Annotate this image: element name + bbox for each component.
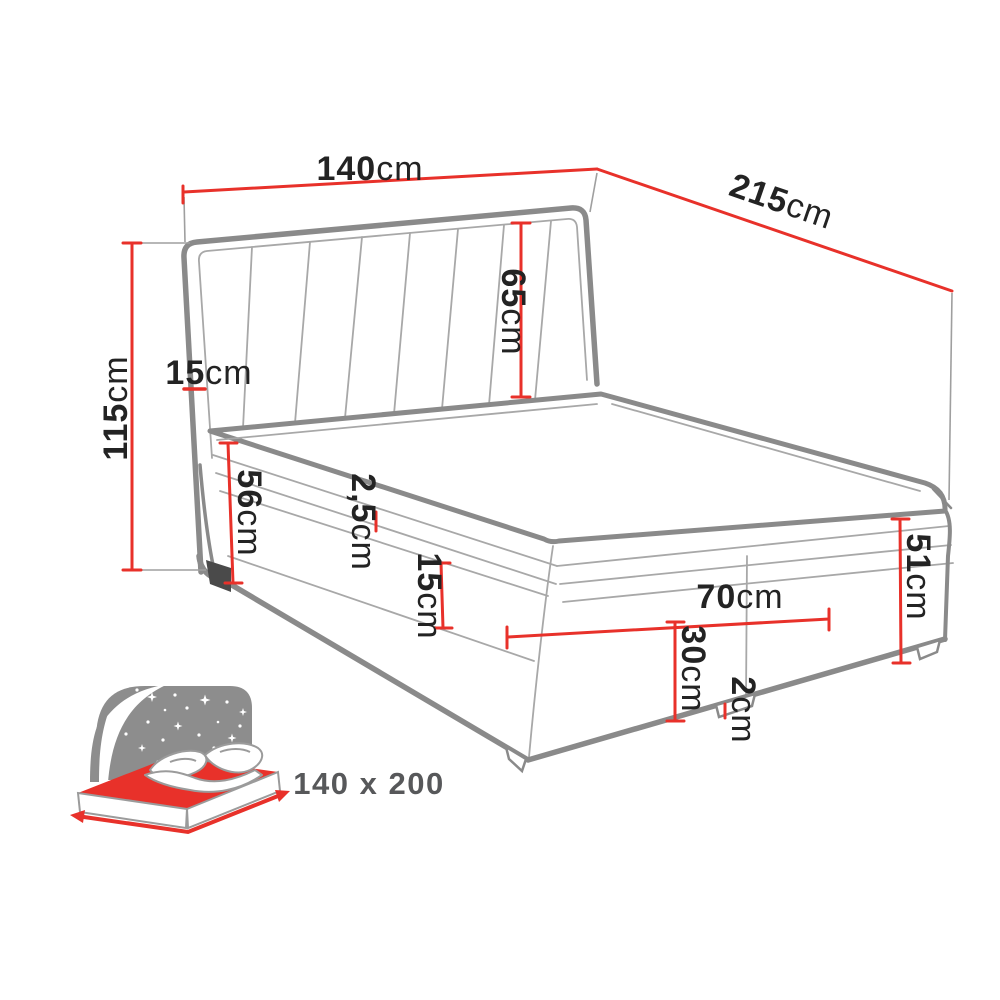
leg-height-label: 2cm	[724, 676, 762, 743]
size-label: 140 x 200	[293, 766, 444, 801]
bed-legs	[206, 560, 940, 771]
topper-thickness-label: 2,5cm	[344, 473, 382, 571]
leg-right	[917, 640, 940, 659]
bed-drawing	[184, 208, 953, 771]
diagram-canvas: 140cm 215cm 115cm 15cm 65cm 56cm 2,5cm 1…	[0, 0, 1000, 1000]
mattress-thickness-label: 15cm	[410, 552, 448, 639]
side-height-label: 51cm	[899, 533, 937, 620]
total-height-label: 115cm	[97, 355, 135, 460]
width-label: 140cm	[316, 150, 423, 188]
front-height-label: 56cm	[230, 469, 268, 556]
bed-size-icon: 140 x 200	[70, 684, 445, 832]
headboard-thickness-label: 15cm	[165, 354, 252, 392]
length-label: 215cm	[725, 166, 839, 237]
bed-dimension-diagram: 140cm 215cm 115cm 15cm 65cm 56cm 2,5cm 1…	[0, 0, 1000, 1000]
box-section-height-label: 30cm	[674, 625, 712, 712]
headboard-height-label: 65cm	[494, 268, 532, 355]
storage-width-label: 70cm	[696, 578, 783, 616]
leg-left	[206, 560, 231, 592]
